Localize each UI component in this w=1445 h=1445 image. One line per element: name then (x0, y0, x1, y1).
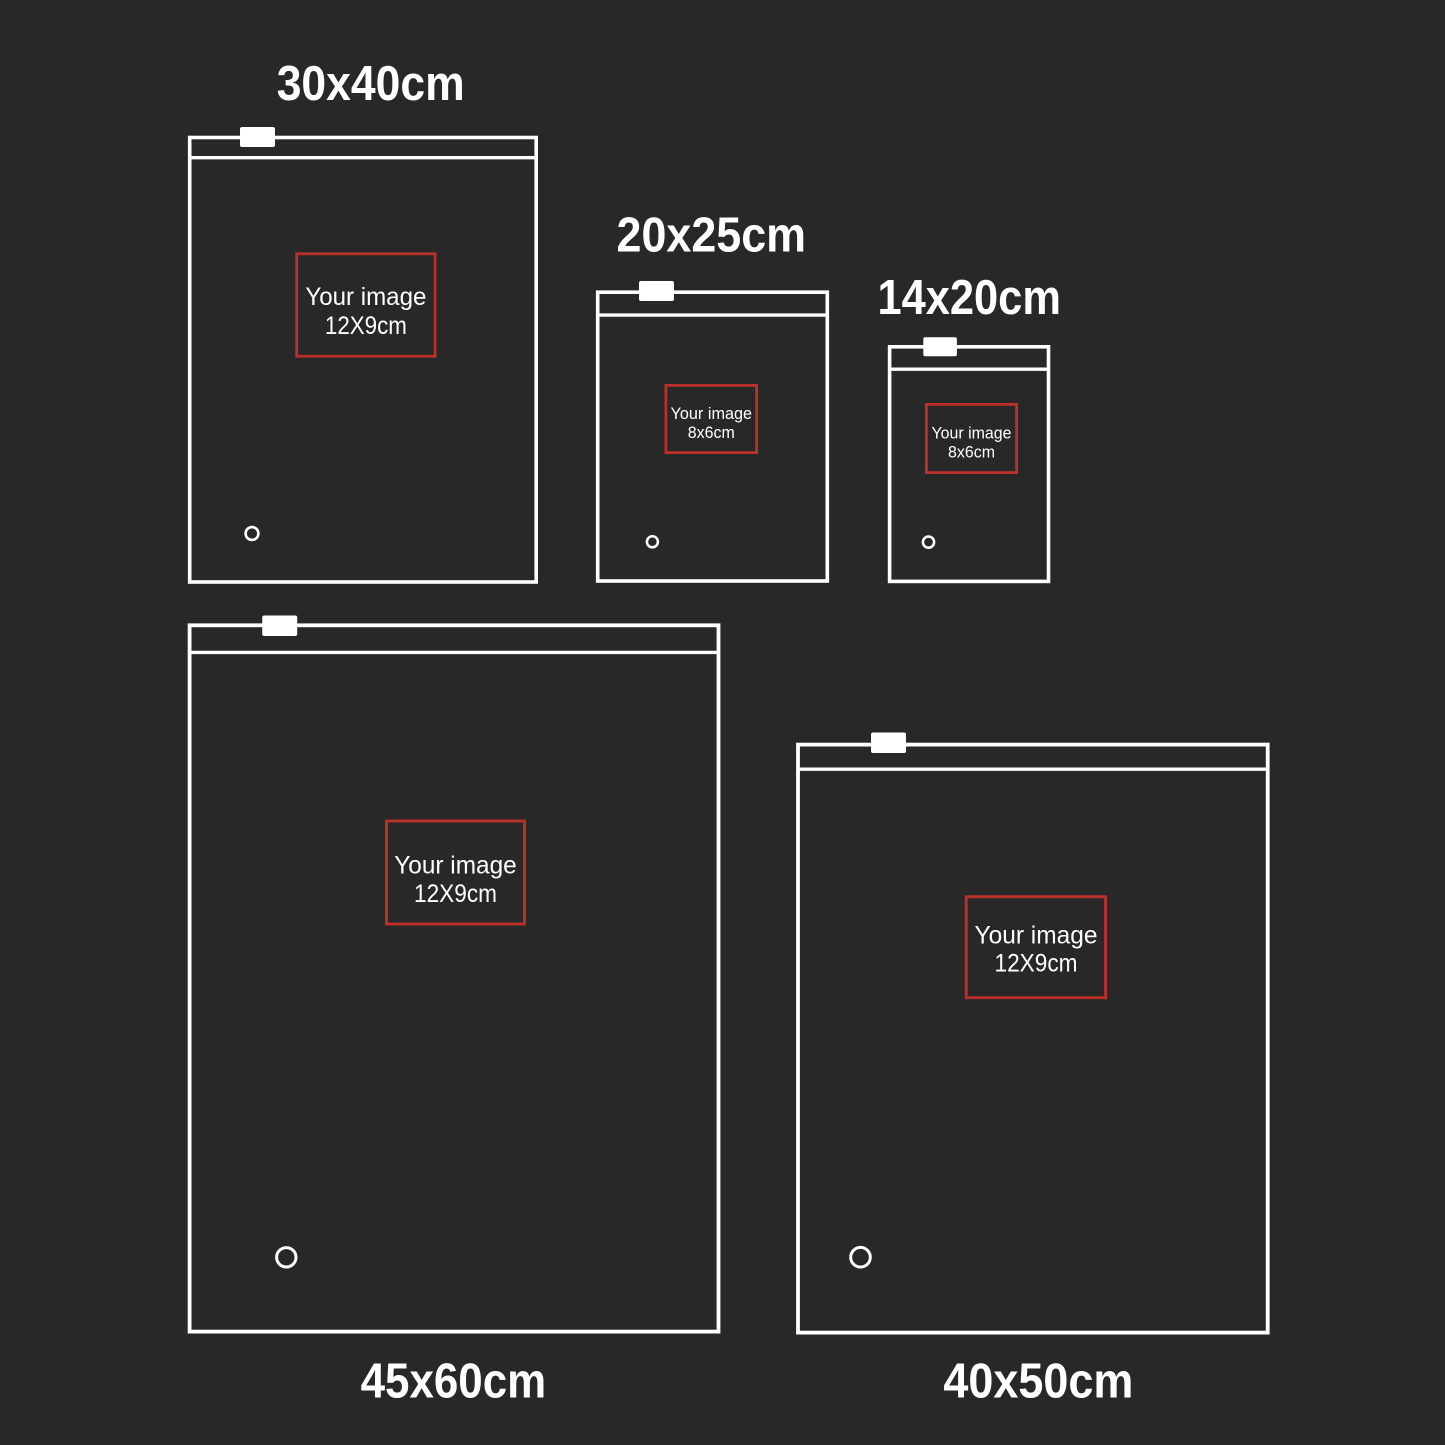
svg-text:12X9cm: 12X9cm (414, 880, 497, 908)
svg-text:45x60cm: 45x60cm (361, 1353, 547, 1408)
svg-text:Your image: Your image (932, 424, 1012, 442)
svg-text:Your image: Your image (394, 852, 517, 880)
svg-text:12X9cm: 12X9cm (995, 949, 1078, 977)
svg-text:12X9cm: 12X9cm (325, 312, 407, 340)
svg-text:8x6cm: 8x6cm (688, 424, 735, 442)
svg-text:14x20cm: 14x20cm (877, 270, 1061, 325)
svg-text:30x40cm: 30x40cm (277, 56, 465, 111)
svg-text:Your image: Your image (305, 283, 426, 311)
svg-text:Your image: Your image (671, 405, 753, 423)
svg-text:20x25cm: 20x25cm (617, 208, 807, 263)
svg-text:40x50cm: 40x50cm (943, 1353, 1133, 1408)
svg-text:8x6cm: 8x6cm (948, 444, 995, 462)
svg-text:Your image: Your image (975, 922, 1098, 950)
